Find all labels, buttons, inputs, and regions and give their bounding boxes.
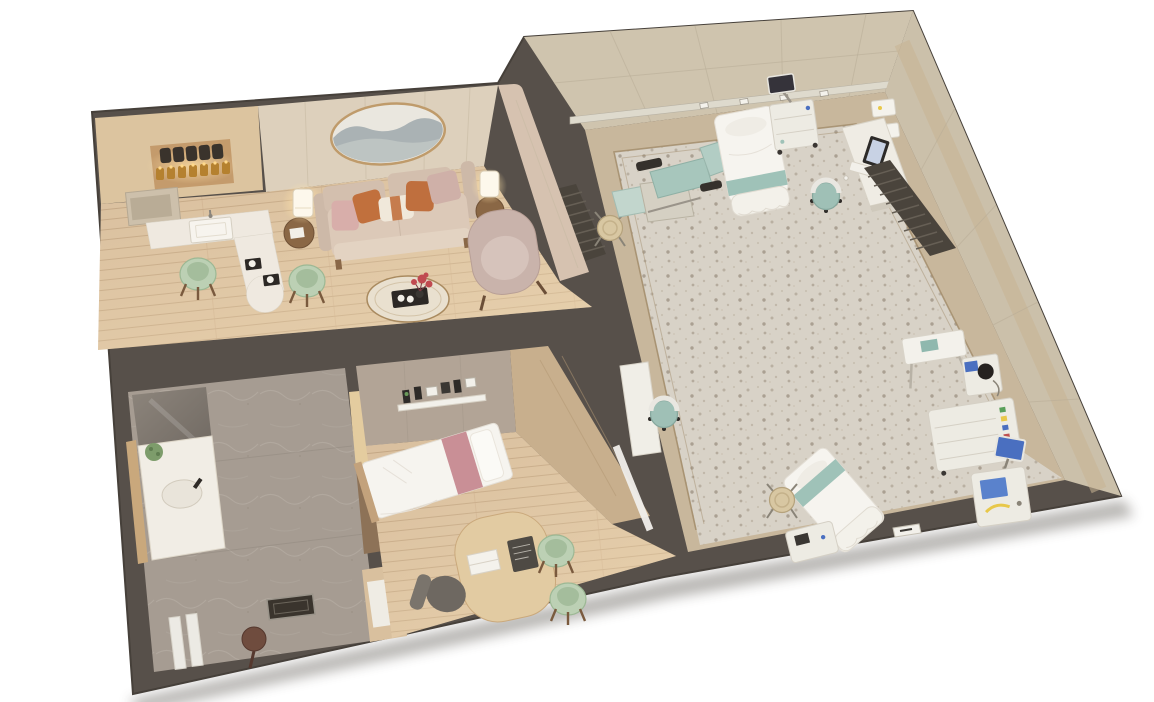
plant xyxy=(145,443,163,461)
table-lamp-right xyxy=(480,171,499,197)
table-lamp-left xyxy=(293,189,313,217)
round-stool-2 xyxy=(767,484,797,518)
room-bathroom xyxy=(126,368,378,672)
book xyxy=(289,227,304,239)
microwave xyxy=(125,187,180,225)
floorplan-3d-render xyxy=(0,0,1154,702)
medical-device-with-screen xyxy=(971,466,1032,527)
mouse xyxy=(844,176,848,180)
floorplan-svg xyxy=(0,0,1154,702)
cart-monitor xyxy=(767,74,795,94)
